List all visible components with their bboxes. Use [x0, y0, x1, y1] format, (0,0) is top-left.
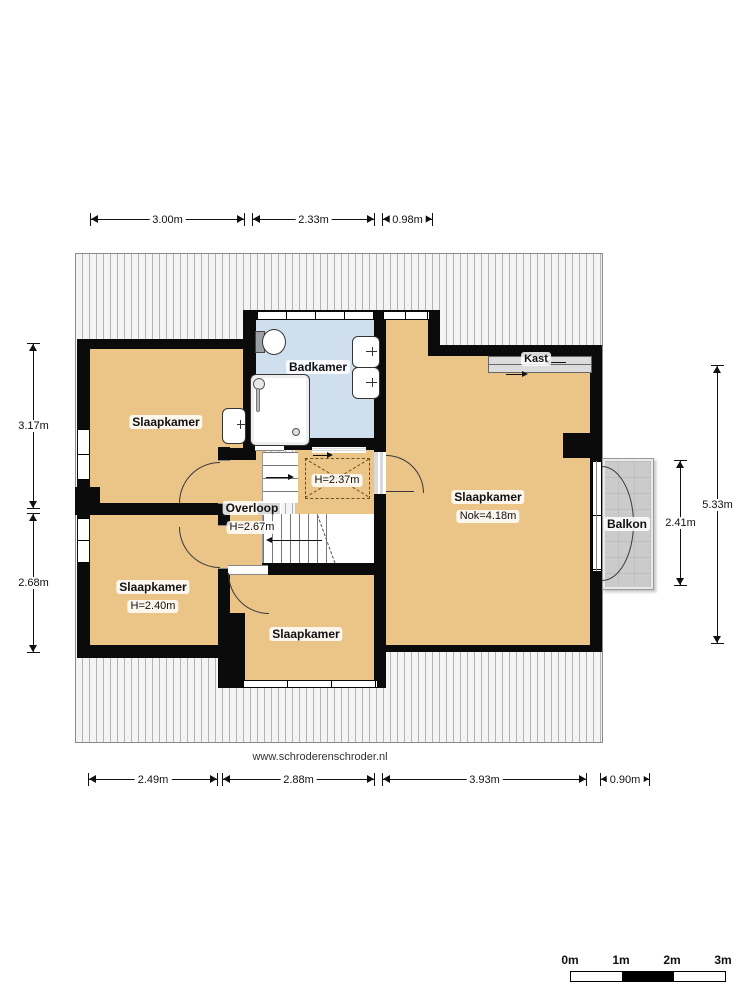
shower-hose-icon — [256, 388, 260, 412]
door-opening — [374, 452, 386, 494]
wall-segment — [77, 503, 228, 515]
sink-icon — [222, 408, 246, 444]
dimension-bottom-2: 2.88m — [222, 773, 375, 786]
sliding-door — [312, 447, 366, 453]
stairs-direction-arrow — [272, 540, 322, 541]
closet-label: Kast — [521, 349, 551, 367]
tap-icon — [372, 347, 373, 356]
wall-segment — [77, 645, 222, 658]
scale-bar — [570, 971, 726, 982]
balcony-label: Balkon — [604, 515, 650, 533]
balcony-door-glazing — [592, 461, 602, 571]
closet-slide-arrow — [550, 362, 566, 363]
dimension-bottom-1: 2.49m — [88, 773, 218, 786]
stairwell-void — [333, 514, 374, 563]
door-leaf — [386, 491, 414, 492]
dimension-top-1: 3.00m — [90, 213, 245, 226]
low-ceiling-label: H=2.37m — [312, 470, 363, 488]
tap-icon — [372, 378, 373, 387]
scale-label-0m: 0m — [561, 953, 578, 967]
room-label-bedroom-bottom-left: Slaapkamer H=2.40m — [116, 578, 189, 614]
window — [257, 312, 374, 319]
dimension-right-2: 2.41m — [674, 460, 687, 586]
tap-icon — [240, 420, 241, 429]
scale-label-3m: 3m — [714, 953, 731, 967]
shower-drain-icon — [292, 428, 300, 436]
wall-segment — [377, 645, 602, 652]
floor-plan: Slaapkamer Badkamer Slaapkamer H=2.40m O… — [0, 0, 750, 1000]
dimension-left-1: 3.17m — [27, 343, 40, 509]
wall-segment — [428, 345, 602, 356]
wall-segment — [77, 339, 255, 349]
window — [243, 681, 377, 687]
room-label-bedroom-top-left: Slaapkamer — [129, 413, 202, 431]
washbasin-icon — [352, 336, 380, 368]
sliding-door-arrow — [313, 455, 327, 456]
scale-label-1m: 1m — [612, 953, 629, 967]
website-url: www.schroderenschroder.nl — [252, 751, 387, 763]
tap-icon — [237, 424, 246, 425]
washbasin-icon — [352, 367, 380, 399]
room-label-bedroom-bottom-middle: Slaapkamer — [269, 625, 342, 643]
window — [78, 518, 89, 563]
dimension-top-3: 0.98m — [382, 213, 433, 226]
room-label-bedroom-main: Slaapkamer Nok=4.18m — [451, 488, 524, 524]
chimney-block — [563, 433, 590, 458]
dimension-bottom-3: 3.93m — [382, 773, 587, 786]
closet-slide-arrow — [506, 374, 522, 375]
dimension-bottom-4: 0.90m — [600, 773, 650, 786]
window — [383, 312, 429, 319]
wall-segment — [218, 613, 245, 688]
dimension-left-2: 2.68m — [27, 513, 40, 653]
dimension-right-1: 5.33m — [711, 365, 724, 644]
wall-segment — [262, 563, 386, 575]
room-label-bathroom: Badkamer — [286, 358, 350, 376]
dimension-top-2: 2.33m — [252, 213, 375, 226]
stairs-direction-arrow — [266, 477, 288, 478]
toilet-icon — [262, 329, 286, 355]
scale-label-2m: 2m — [663, 953, 680, 967]
window — [78, 429, 89, 480]
room-label-landing: Overloop H=2.67m — [223, 499, 282, 535]
